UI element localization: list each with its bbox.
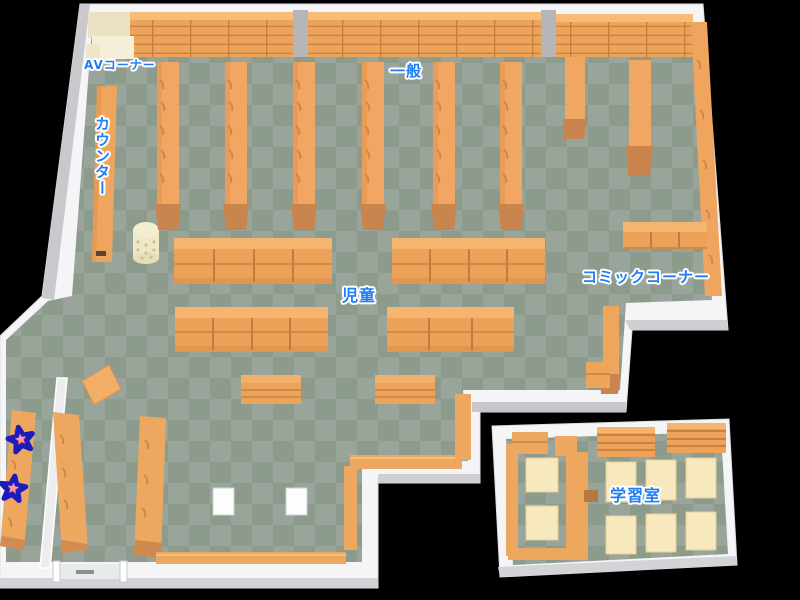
area-label-comic-corner: コミックコーナー: [582, 266, 710, 287]
south-wall-shelf: [156, 552, 346, 564]
white-table: [213, 488, 234, 515]
cylinder-display: [133, 222, 159, 264]
step2-wall-shade: [378, 474, 480, 483]
floor-map-graphic: [0, 0, 800, 600]
entrance-door: [53, 561, 127, 582]
pillar: [293, 10, 308, 57]
notch-wall-shade: [625, 320, 728, 330]
area-label-general: 一般: [390, 60, 422, 81]
step-wall-shade: [472, 402, 626, 412]
low-table: [375, 375, 435, 404]
low-table: [241, 375, 301, 404]
area-label-av-corner: AVコーナー: [84, 56, 156, 73]
area-label-children: 児童: [342, 282, 376, 306]
top-wall-bookshelves: [125, 10, 693, 57]
pillar: [541, 10, 556, 57]
white-table: [286, 488, 307, 515]
library-floor-map: AVコーナー 一般 カウンター 児童 コミックコーナー 学習室: [0, 0, 800, 600]
area-label-counter: カウンター: [92, 116, 113, 226]
area-label-study-room: 学習室: [610, 482, 661, 506]
